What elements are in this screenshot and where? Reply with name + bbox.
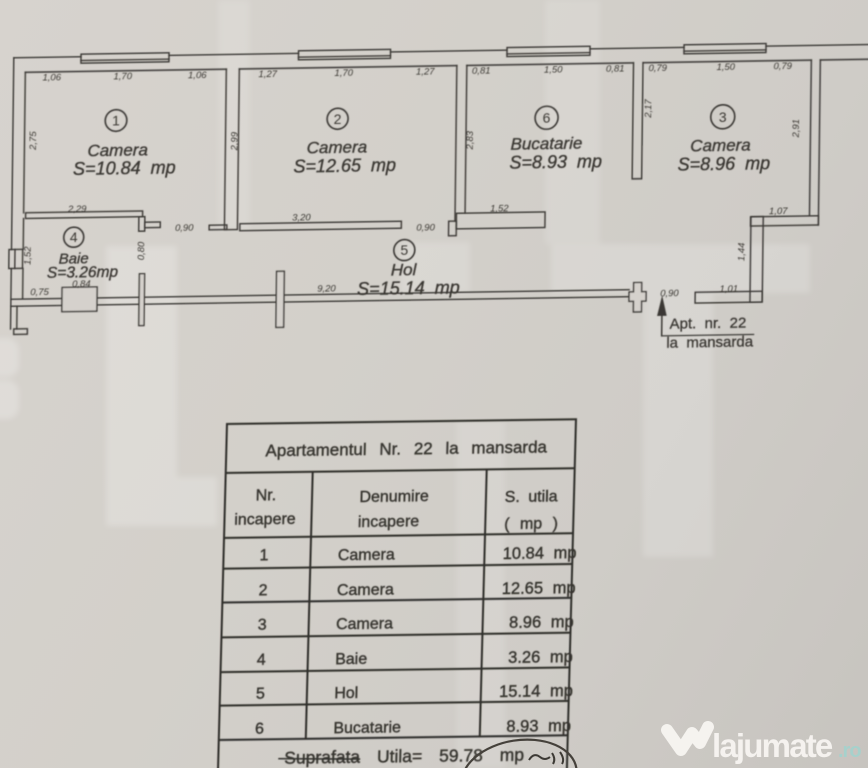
svg-text:Camera: Camera [307, 137, 368, 157]
svg-text:Nr.: Nr. [255, 487, 276, 504]
svg-text:2,75: 2,75 [28, 131, 39, 151]
svg-text:1,44: 1,44 [736, 243, 747, 262]
svg-text:8.93 mp: 8.93 mp [506, 717, 571, 736]
svg-text:Denumire: Denumire [359, 488, 429, 506]
svg-text:1,07: 1,07 [769, 206, 788, 217]
svg-text:6: 6 [255, 721, 264, 738]
svg-text:Baie: Baie [335, 651, 368, 668]
svg-text:S=8.93 mp: S=8.93 mp [509, 151, 602, 172]
svg-text:0,79: 0,79 [773, 61, 792, 72]
svg-text:2: 2 [258, 582, 267, 599]
svg-text:12.65 mp: 12.65 mp [502, 579, 576, 598]
svg-text:3: 3 [258, 617, 267, 634]
svg-text:1,27: 1,27 [258, 69, 277, 80]
svg-text:4: 4 [257, 652, 266, 669]
svg-text:1,70: 1,70 [334, 68, 353, 79]
svg-text:Apartamentul Nr. 22 la mansard: Apartamentul Nr. 22 la mansarda [265, 438, 547, 461]
svg-text:Bucatarie: Bucatarie [333, 720, 401, 738]
svg-text:Bucatarie: Bucatarie [510, 134, 582, 154]
svg-text:1,27: 1,27 [416, 66, 435, 77]
svg-text:lajumate: lajumate [712, 727, 833, 764]
svg-text:Camera: Camera [690, 136, 751, 156]
svg-text:1,06: 1,06 [42, 72, 61, 83]
svg-text:6: 6 [543, 110, 551, 126]
svg-text:0,80: 0,80 [136, 241, 147, 260]
svg-text:5: 5 [400, 242, 408, 258]
svg-text:Camera: Camera [338, 547, 395, 565]
svg-text:Hol: Hol [334, 685, 358, 702]
svg-text:0,81: 0,81 [606, 64, 625, 75]
svg-text:3.26 mp: 3.26 mp [508, 648, 573, 667]
svg-text:Apt. nr. 22: Apt. nr. 22 [669, 315, 746, 333]
svg-text:2,17: 2,17 [643, 98, 654, 118]
svg-text:1,70: 1,70 [113, 71, 132, 82]
svg-text:10.84 mp: 10.84 mp [502, 544, 576, 563]
svg-text:0,90: 0,90 [660, 288, 679, 299]
svg-text:0,90: 0,90 [416, 222, 435, 233]
svg-text:2,29: 2,29 [67, 204, 87, 215]
svg-text:1,52: 1,52 [490, 203, 509, 214]
svg-text:1,52: 1,52 [23, 246, 34, 265]
svg-text:3,20: 3,20 [292, 212, 311, 223]
svg-text:S. utila: S. utila [505, 489, 558, 507]
svg-text:4: 4 [70, 229, 78, 245]
svg-text:0,81: 0,81 [472, 66, 491, 77]
svg-text:incapere: incapere [358, 513, 420, 531]
svg-text:Camera: Camera [337, 582, 394, 600]
svg-text:incapere: incapere [234, 511, 296, 529]
svg-text:9,20: 9,20 [317, 283, 336, 294]
svg-text:Hol: Hol [391, 260, 418, 279]
svg-text:0,90: 0,90 [175, 223, 194, 234]
svg-text:1,01: 1,01 [719, 284, 738, 295]
svg-text:0,79: 0,79 [648, 63, 667, 74]
svg-text:0,75: 0,75 [30, 287, 49, 298]
svg-text:5: 5 [256, 686, 265, 703]
svg-text:1: 1 [112, 112, 120, 128]
svg-text:1,50: 1,50 [544, 64, 563, 75]
svg-text:2,91: 2,91 [791, 119, 802, 139]
svg-text:1,06: 1,06 [188, 70, 207, 81]
svg-text:S=3.26mp: S=3.26mp [47, 264, 119, 282]
svg-text:Camera: Camera [336, 616, 393, 634]
svg-text:2,99: 2,99 [229, 131, 240, 151]
svg-text:15.14 mp: 15.14 mp [499, 682, 573, 701]
svg-text:S=8.96 mp: S=8.96 mp [678, 153, 771, 174]
svg-text:.ro: .ro [838, 740, 861, 762]
svg-text:( mp ): ( mp ) [504, 515, 558, 533]
svg-text:S=10.84 mp: S=10.84 mp [73, 157, 176, 179]
svg-text:1: 1 [259, 547, 268, 564]
svg-text:3: 3 [719, 109, 727, 125]
svg-text:8.96 mp: 8.96 mp [509, 613, 574, 632]
svg-text:S=15.14 mp: S=15.14 mp [357, 278, 460, 300]
svg-text:2,83: 2,83 [465, 130, 476, 150]
svg-text:1,50: 1,50 [716, 62, 735, 73]
svg-text:la mansarda: la mansarda [666, 333, 754, 351]
svg-text:2: 2 [334, 111, 342, 127]
svg-text:S=12.65 mp: S=12.65 mp [293, 155, 396, 177]
